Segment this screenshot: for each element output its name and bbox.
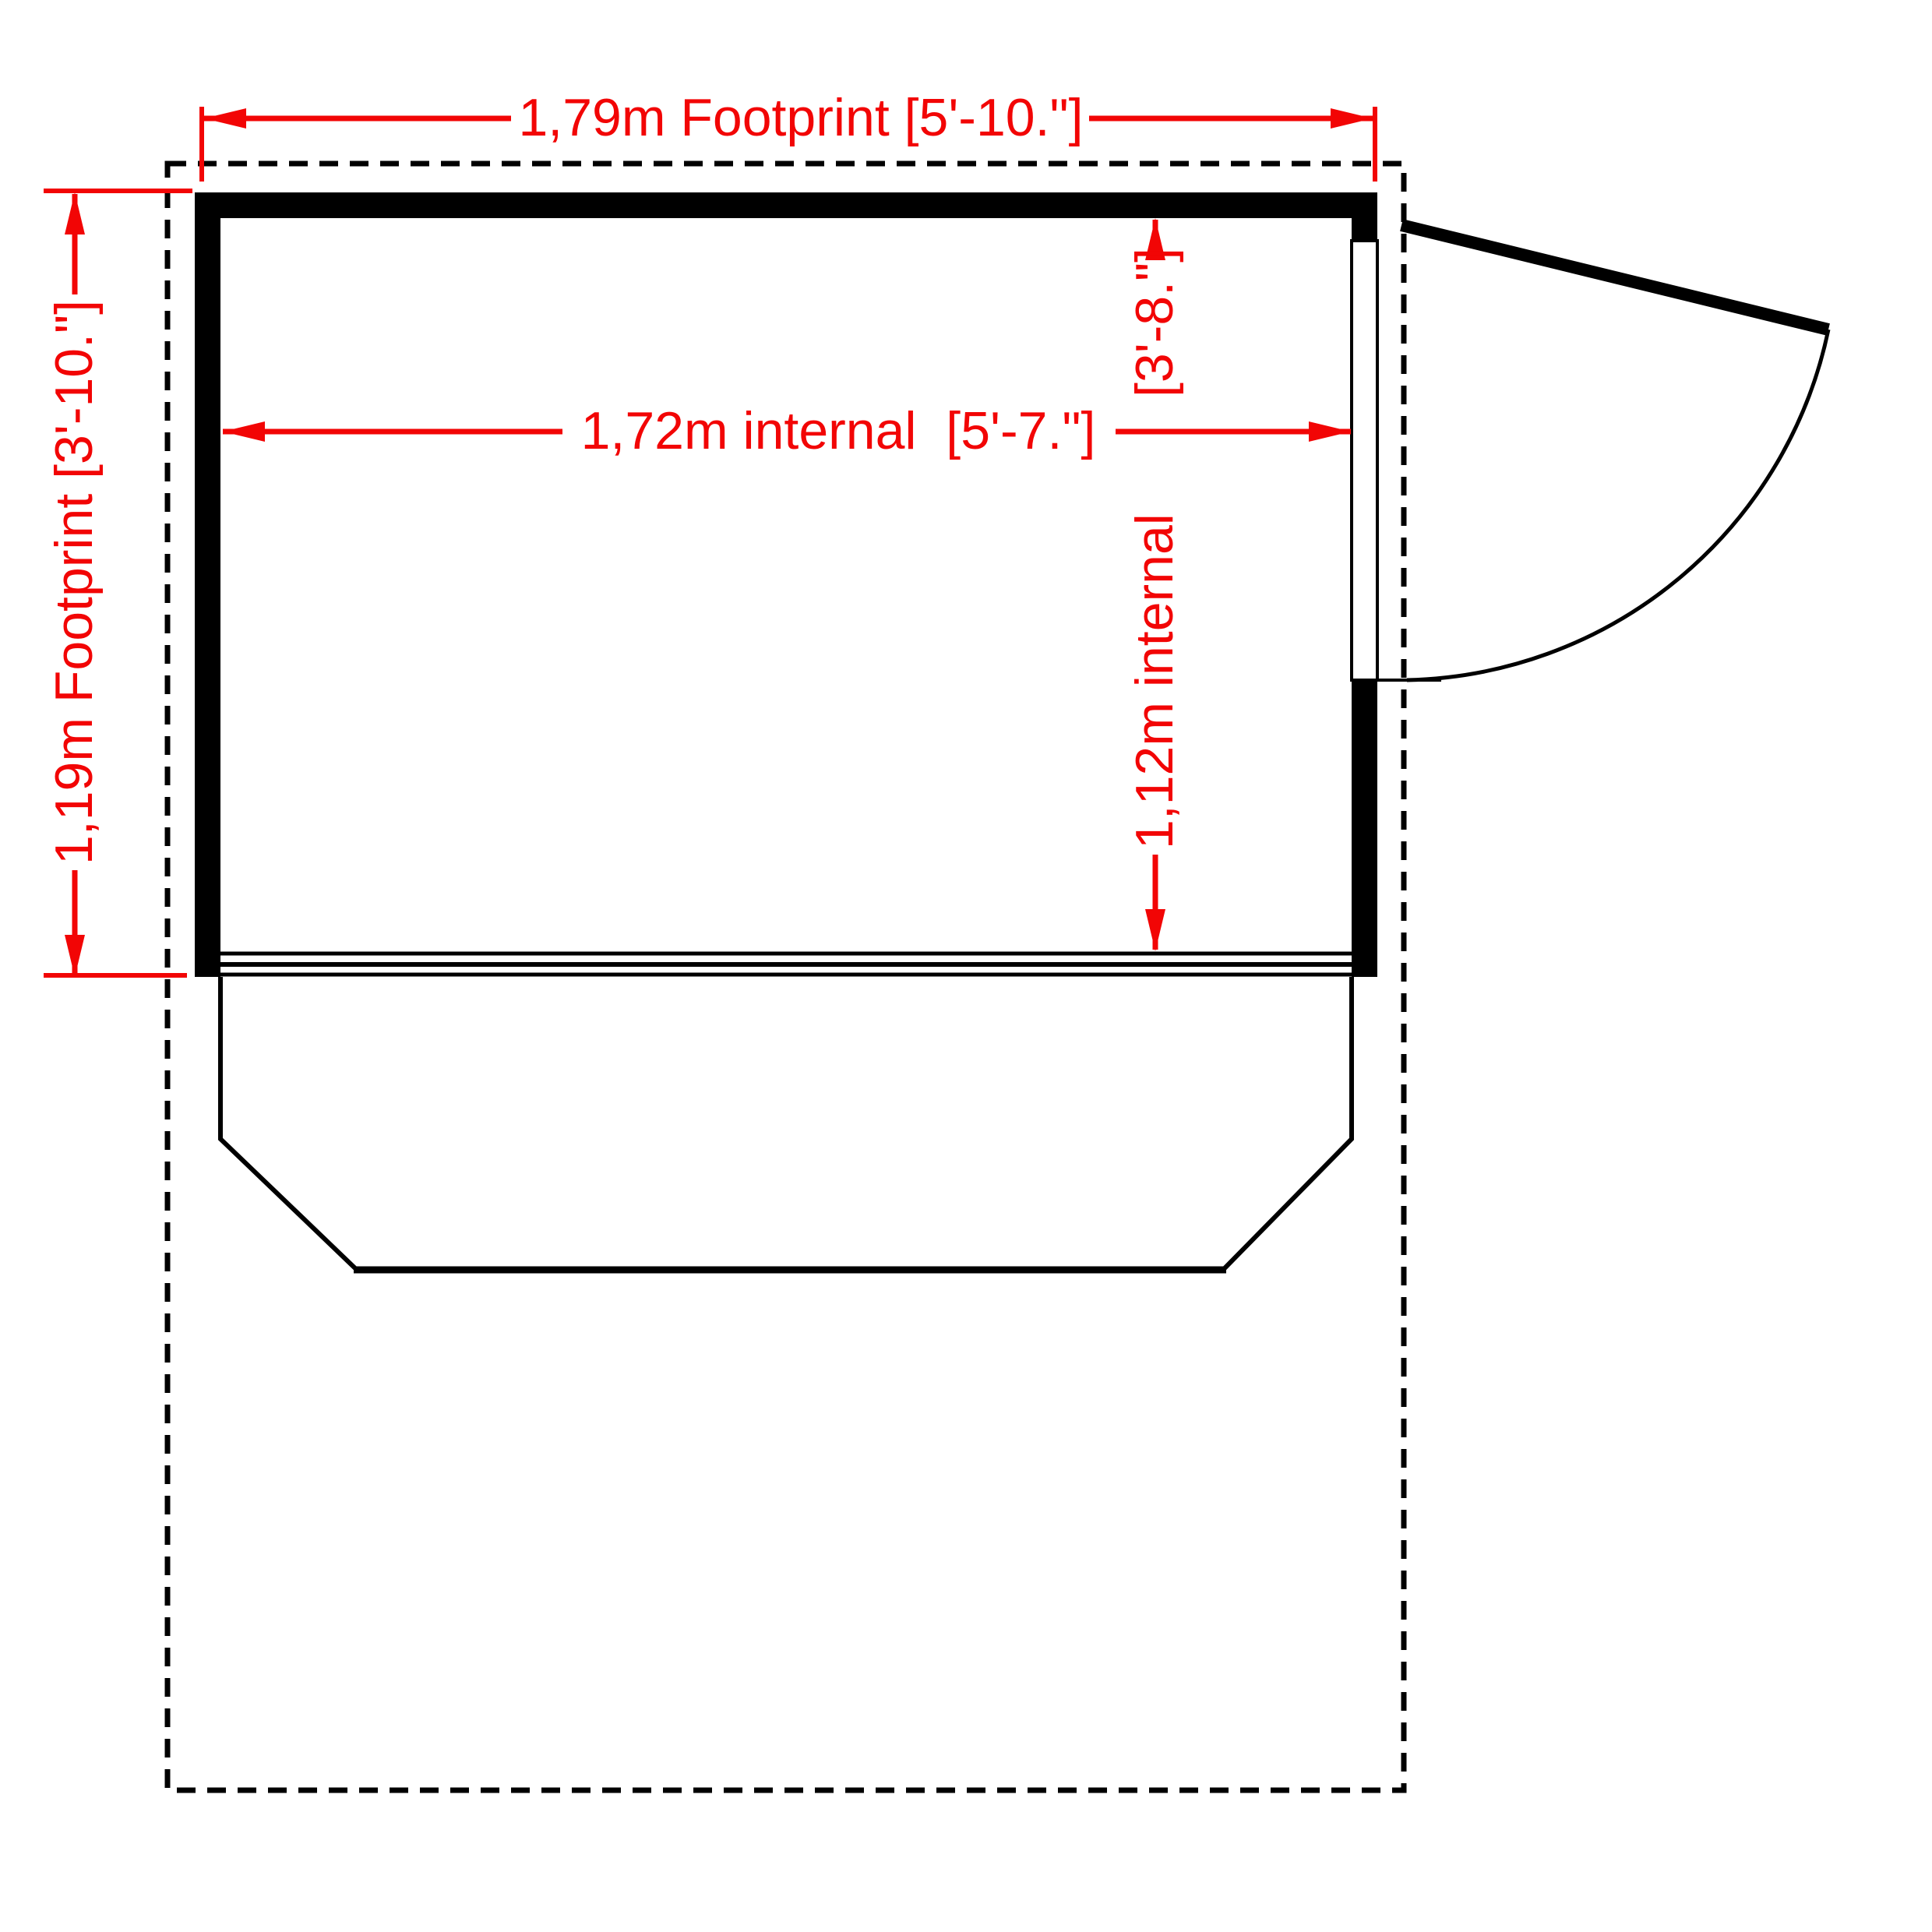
door-leaf [1401, 225, 1828, 330]
wall-right-upper [1352, 192, 1377, 241]
internal-depth-label-unit: [3'-8."] [1128, 248, 1181, 397]
internal-width-label: 1,72m internal [5'-7."] [581, 404, 1096, 457]
arrowhead-down-icon [65, 935, 85, 977]
wall-left [195, 192, 220, 977]
arrowhead-left-icon [223, 421, 265, 442]
door-swing-arc [1407, 330, 1828, 680]
wall-right-lower [1352, 680, 1377, 977]
arrowhead-right-icon [1309, 421, 1351, 442]
door-frame [1352, 241, 1377, 680]
footprint-depth-label: 1,19m Footprint [3'-10."] [48, 300, 100, 865]
arrowhead-down-icon [1145, 909, 1165, 951]
door-assembly [1352, 225, 1828, 680]
floor-plan-canvas: 1,79m Footprint [5'-10."] 1,19m Footprin… [0, 0, 1932, 1932]
arrowhead-right-icon [1331, 108, 1373, 129]
plan-drawing [0, 0, 1932, 1932]
arrowhead-left-icon [204, 108, 246, 129]
veranda-bay [220, 977, 1352, 1270]
building-walls [195, 192, 1377, 977]
internal-depth-label-value: 1,12m internal [1128, 513, 1181, 849]
wall-top [195, 192, 1377, 218]
footprint-width-label: 1,79m Footprint [5'-10."] [518, 91, 1083, 144]
veranda-bay-outline [220, 977, 1352, 1270]
front-window-glazing [220, 954, 1352, 975]
arrowhead-up-icon [65, 192, 85, 234]
